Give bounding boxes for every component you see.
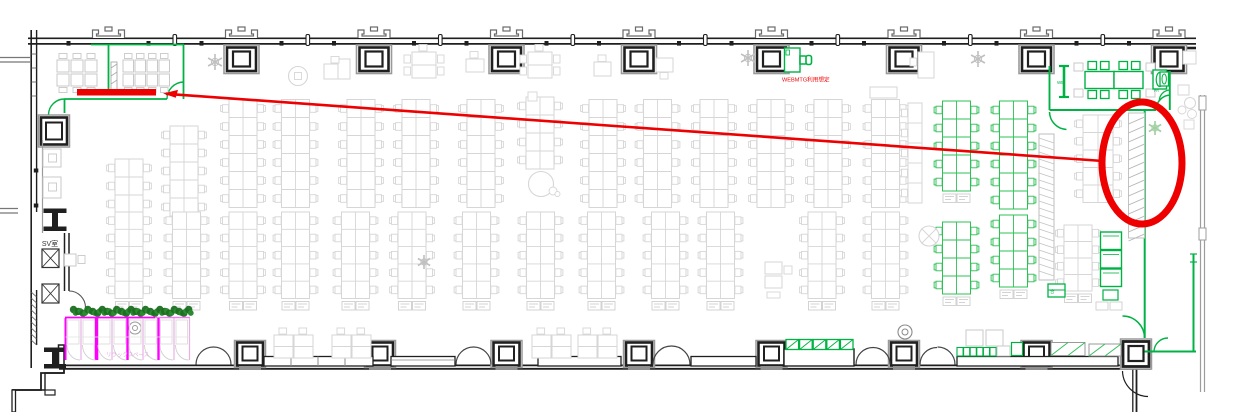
- svg-text:PR: PR: [1154, 89, 1159, 93]
- svg-text:合: 合: [1050, 288, 1055, 295]
- svg-text:WB: WB: [1057, 80, 1064, 85]
- svg-text:リラックスペース: リラックスペース: [106, 352, 149, 359]
- svg-text:WEBMTG利用想定: WEBMTG利用想定: [782, 76, 830, 84]
- svg-text:SV室: SV室: [42, 239, 58, 248]
